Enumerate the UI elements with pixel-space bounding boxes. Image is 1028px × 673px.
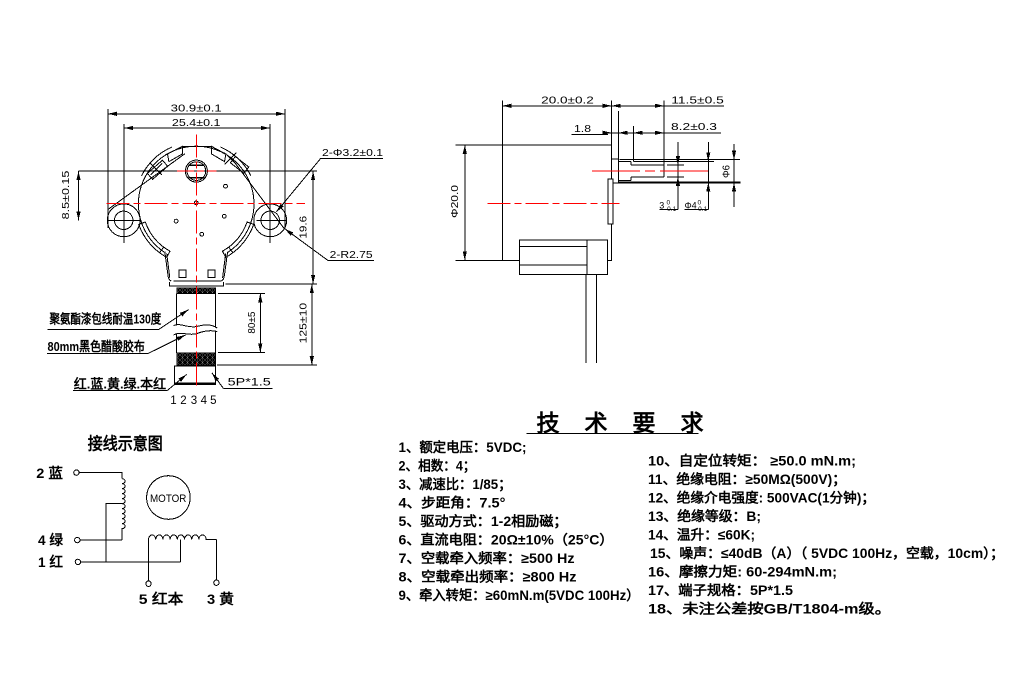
svg-text:Φ4: Φ4 xyxy=(685,200,697,210)
svg-text:19.6: 19.6 xyxy=(298,216,310,239)
svg-text:15、噪声：≤40dB（A）（ 5VDC 100Hz，空载，: 15、噪声：≤40dB（A）（ 5VDC 100Hz，空载，10cm）； xyxy=(650,545,1004,562)
svg-text:5 红本: 5 红本 xyxy=(139,591,185,607)
svg-text:20.0±0.2: 20.0±0.2 xyxy=(541,95,594,107)
svg-text:MOTOR: MOTOR xyxy=(150,493,186,505)
svg-text:17、端子规格：5P*1.5: 17、端子规格：5P*1.5 xyxy=(648,582,794,598)
svg-text:5P*1.5: 5P*1.5 xyxy=(228,376,271,388)
svg-text:5、驱动方式：1-2相励磁；: 5、驱动方式：1-2相励磁； xyxy=(399,513,568,530)
svg-text:13、绝缘等级：B;: 13、绝缘等级：B; xyxy=(648,508,761,524)
svg-text:1: 1 xyxy=(170,395,176,407)
svg-text:技: 技 xyxy=(537,410,561,436)
svg-text:2-R2.75: 2-R2.75 xyxy=(330,249,373,261)
svg-text:10、自定位转矩： ≥50.0 mN.m;: 10、自定位转矩： ≥50.0 mN.m; xyxy=(648,453,856,469)
svg-text:30.9±0.1: 30.9±0.1 xyxy=(171,103,222,115)
svg-text:1、额定电压：5VDC;: 1、额定电压：5VDC; xyxy=(399,439,527,455)
svg-text:80mm黑色醋酸胶布: 80mm黑色醋酸胶布 xyxy=(48,339,145,354)
svg-text:3 黄: 3 黄 xyxy=(207,591,234,607)
svg-text:接线示意图: 接线示意图 xyxy=(88,434,163,454)
svg-text:Φ6: Φ6 xyxy=(722,165,733,178)
svg-text:14、温升：≤60K;: 14、温升：≤60K; xyxy=(648,527,755,543)
svg-text:4 绿: 4 绿 xyxy=(38,532,64,548)
svg-text:11、绝缘电阻：≥50MΩ(500V)；: 11、绝缘电阻：≥50MΩ(500V)； xyxy=(648,471,846,488)
svg-text:2-Φ3.2±0.1: 2-Φ3.2±0.1 xyxy=(322,147,383,159)
svg-text:9、牵入转矩：≥60mN.m(5VDC 100Hz）: 9、牵入转矩：≥60mN.m(5VDC 100Hz） xyxy=(399,587,640,603)
svg-text:5: 5 xyxy=(210,395,216,407)
svg-text:4、步距角：7.5°: 4、步距角：7.5° xyxy=(399,495,506,511)
svg-text:3: 3 xyxy=(659,200,664,210)
svg-text:求: 求 xyxy=(681,410,704,436)
svg-text:16、摩擦力矩: 60-294mN.m;: 16、摩擦力矩: 60-294mN.m; xyxy=(648,564,837,580)
svg-text:2、相数：4；: 2、相数：4； xyxy=(399,458,476,475)
svg-text:8、空载牵出频率：≥800 Hz: 8、空载牵出频率：≥800 Hz xyxy=(399,569,577,585)
svg-text:要: 要 xyxy=(633,410,656,436)
svg-text:80±5: 80±5 xyxy=(247,311,258,333)
svg-text:6、直流电阻：20Ω±10%（25°C）: 6、直流电阻：20Ω±10%（25°C） xyxy=(399,532,614,548)
svg-text:2: 2 xyxy=(180,395,186,407)
svg-text:125±10: 125±10 xyxy=(298,303,310,344)
svg-text:1.8: 1.8 xyxy=(574,123,591,135)
svg-text:聚氨酯漆包线耐温130度: 聚氨酯漆包线耐温130度 xyxy=(49,311,162,326)
svg-text:18、未注公差按GB/T1804-m级。: 18、未注公差按GB/T1804-m级。 xyxy=(648,601,891,617)
svg-text:2 蓝: 2 蓝 xyxy=(36,465,63,481)
svg-text:1 红: 1 红 xyxy=(38,554,63,570)
svg-text:25.4±0.1: 25.4±0.1 xyxy=(172,117,221,129)
svg-text:11.5±0.5: 11.5±0.5 xyxy=(671,95,724,107)
svg-text:3、减速比：1/85；: 3、减速比：1/85； xyxy=(399,476,512,493)
svg-text:4: 4 xyxy=(201,395,208,407)
svg-text:8.5±0.15: 8.5±0.15 xyxy=(60,170,72,219)
svg-text:12、绝缘介电强度: 500VAC(1分钟)；: 12、绝缘介电强度: 500VAC(1分钟)； xyxy=(648,490,875,507)
svg-text:3: 3 xyxy=(191,395,197,407)
svg-text:8.2±0.3: 8.2±0.3 xyxy=(671,121,717,133)
svg-text:Φ20.0: Φ20.0 xyxy=(449,185,461,218)
svg-text:7、空载牵入频率：≥500 Hz: 7、空载牵入频率：≥500 Hz xyxy=(399,550,575,566)
svg-text:术: 术 xyxy=(585,410,608,436)
svg-text:红.蓝.黄.绿.本红: 红.蓝.黄.绿.本红 xyxy=(74,377,166,392)
